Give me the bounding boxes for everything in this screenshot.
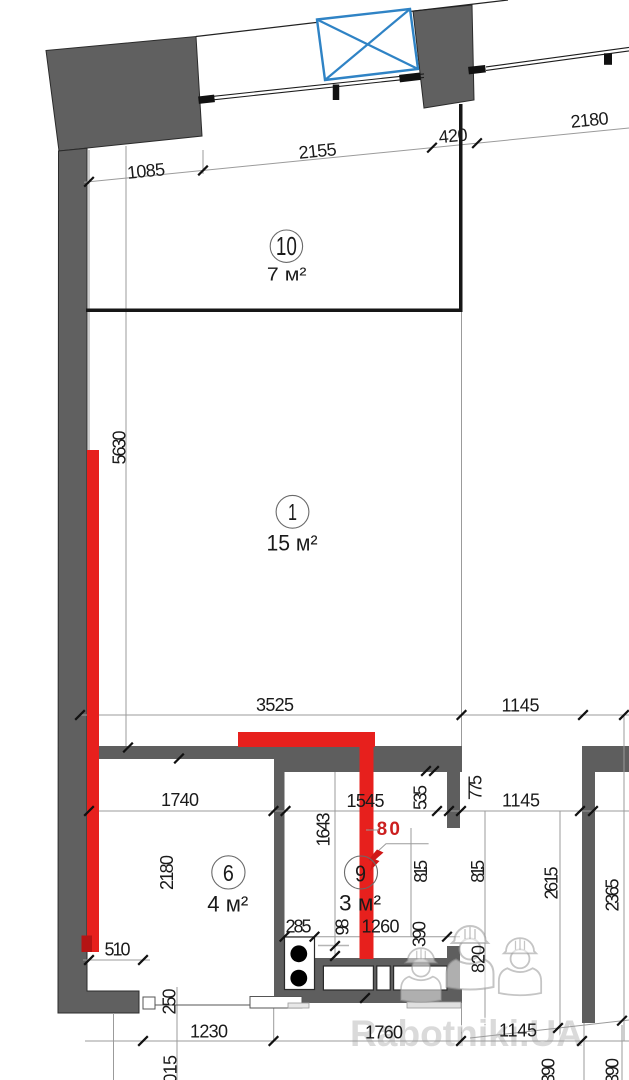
svg-text:2180: 2180 — [570, 108, 610, 132]
svg-text:6: 6 — [223, 860, 234, 886]
svg-text:1545: 1545 — [347, 791, 385, 811]
svg-text:3525: 3525 — [256, 695, 294, 715]
svg-text:1145: 1145 — [502, 696, 540, 716]
svg-text:1085: 1085 — [126, 159, 166, 183]
svg-text:815: 815 — [411, 860, 431, 883]
svg-text:285: 285 — [286, 917, 312, 937]
svg-text:390: 390 — [539, 1058, 559, 1080]
svg-text:2365: 2365 — [603, 879, 623, 912]
svg-text:2615: 2615 — [542, 867, 562, 900]
svg-text:420: 420 — [438, 124, 469, 147]
svg-text:5630: 5630 — [110, 431, 130, 465]
svg-text:2155: 2155 — [298, 139, 338, 163]
svg-text:815: 815 — [468, 860, 488, 883]
svg-text:250: 250 — [160, 989, 180, 1015]
svg-text:775: 775 — [466, 775, 486, 800]
svg-text:1: 1 — [288, 499, 297, 525]
svg-text:1015: 1015 — [161, 1055, 181, 1080]
svg-text:3 м²: 3 м² — [339, 891, 381, 916]
svg-text:390: 390 — [603, 1058, 623, 1080]
svg-text:1145: 1145 — [502, 791, 540, 811]
svg-text:2180: 2180 — [157, 855, 177, 890]
svg-text:390: 390 — [410, 921, 430, 947]
svg-text:10: 10 — [276, 231, 297, 261]
svg-text:4 м²: 4 м² — [207, 892, 248, 917]
svg-text:9: 9 — [355, 861, 366, 887]
svg-text:15 м²: 15 м² — [267, 531, 318, 556]
svg-text:1230: 1230 — [190, 1022, 228, 1042]
svg-text:820: 820 — [469, 945, 489, 973]
svg-text:1760: 1760 — [365, 1023, 403, 1043]
svg-text:7 м²: 7 м² — [267, 263, 307, 284]
svg-text:1643: 1643 — [314, 813, 334, 847]
svg-text:1740: 1740 — [161, 790, 199, 810]
svg-text:98: 98 — [333, 919, 353, 936]
svg-text:1260: 1260 — [362, 917, 400, 937]
svg-text:535: 535 — [411, 785, 431, 810]
svg-text:1145: 1145 — [499, 1021, 537, 1041]
svg-text:510: 510 — [105, 940, 131, 960]
